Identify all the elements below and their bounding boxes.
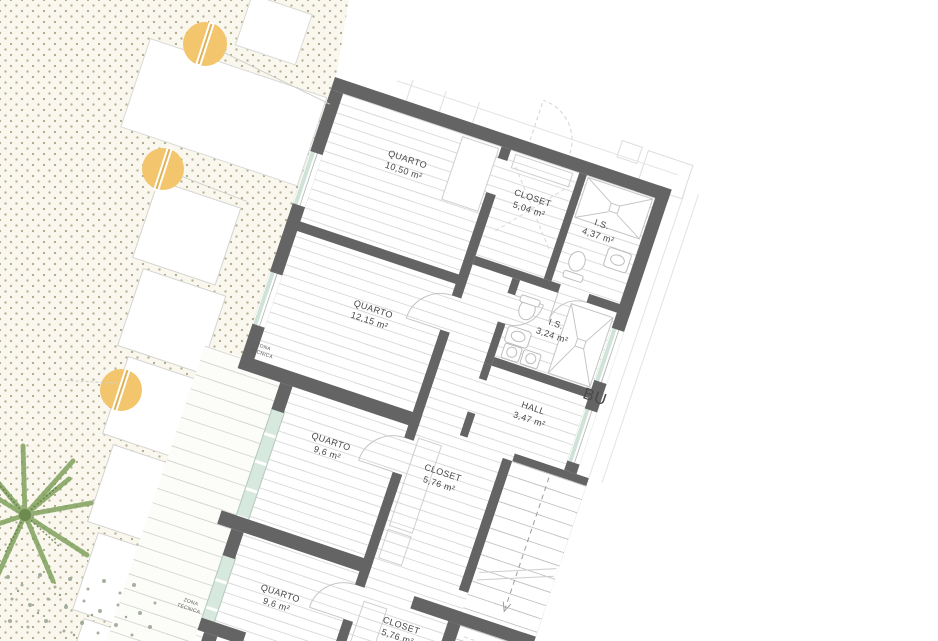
stair-walkline [505,478,549,609]
tree-icon [100,369,142,411]
gravel-scatter [0,565,200,641]
toilet [566,249,588,273]
roof-line [397,81,678,175]
dimension-ticks [406,80,479,123]
floor-plan-canvas: QUARTO 10,50 m² CLOSET 5,04 m² I.S. 4,37… [0,0,938,641]
wardrobe-dashed [454,637,501,641]
closet-shelf [511,154,572,186]
tree-icon [183,22,227,66]
wardrobe [379,529,411,565]
tree-icon [142,148,184,190]
palm-trunk [19,509,31,521]
entry-door-arc [530,100,583,153]
